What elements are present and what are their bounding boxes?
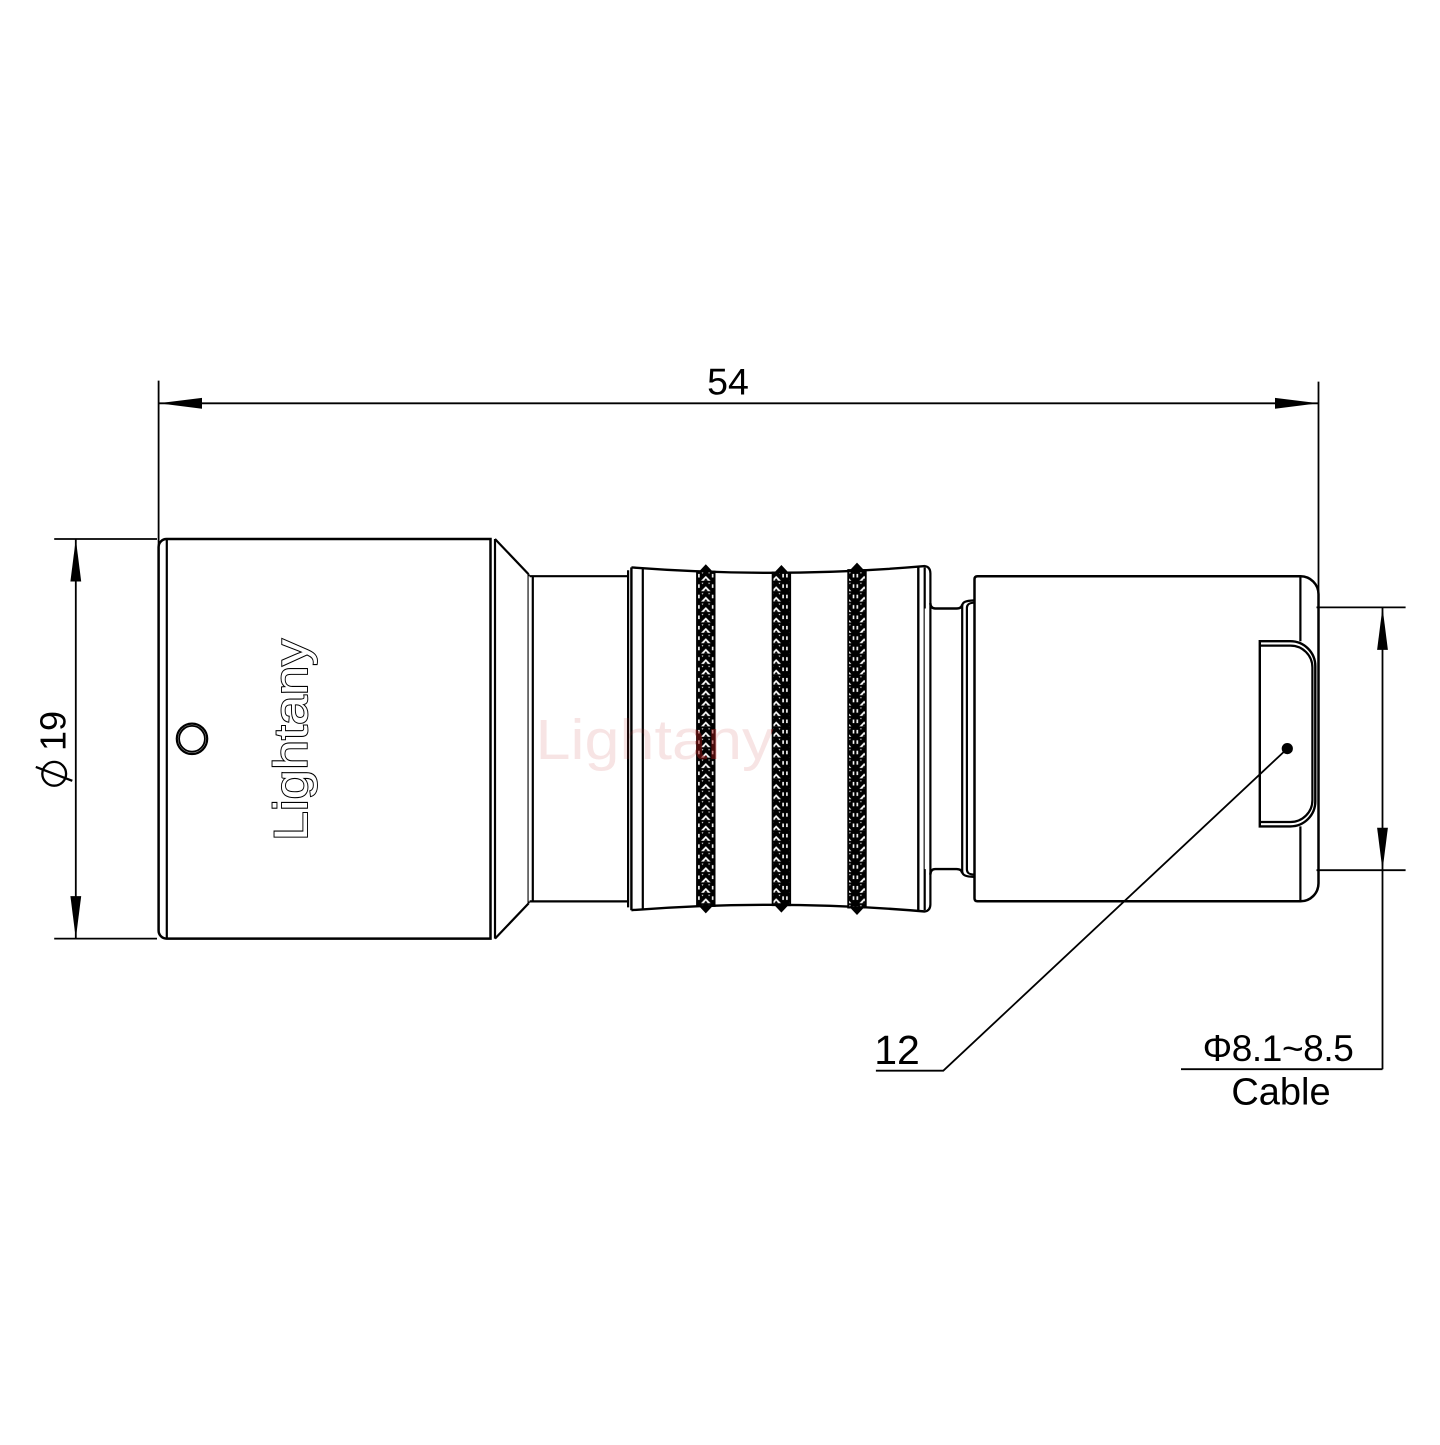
svg-text:12: 12: [874, 1027, 920, 1073]
svg-text:19: 19: [33, 711, 74, 751]
svg-text:Φ8.1~8.5: Φ8.1~8.5: [1203, 1028, 1354, 1069]
svg-text:54: 54: [707, 361, 749, 403]
svg-text:Lightany: Lightany: [536, 708, 775, 772]
svg-text:Cable: Cable: [1231, 1072, 1330, 1114]
svg-text:Lightany: Lightany: [265, 639, 318, 841]
